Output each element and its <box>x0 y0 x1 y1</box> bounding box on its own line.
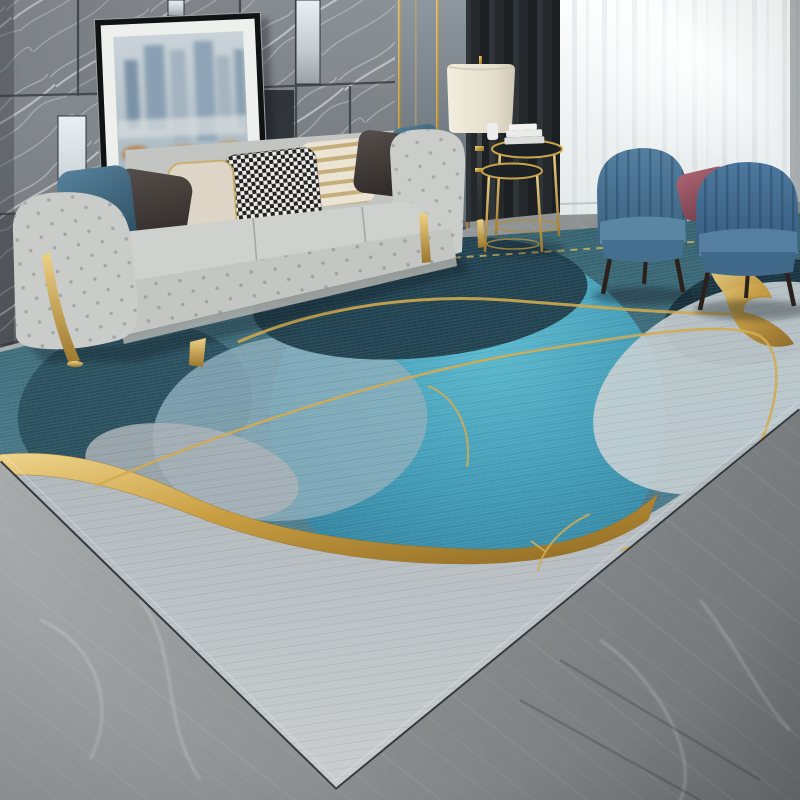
scene-canvas <box>0 0 800 800</box>
vignette <box>0 0 800 800</box>
living-room-photo <box>0 0 800 800</box>
